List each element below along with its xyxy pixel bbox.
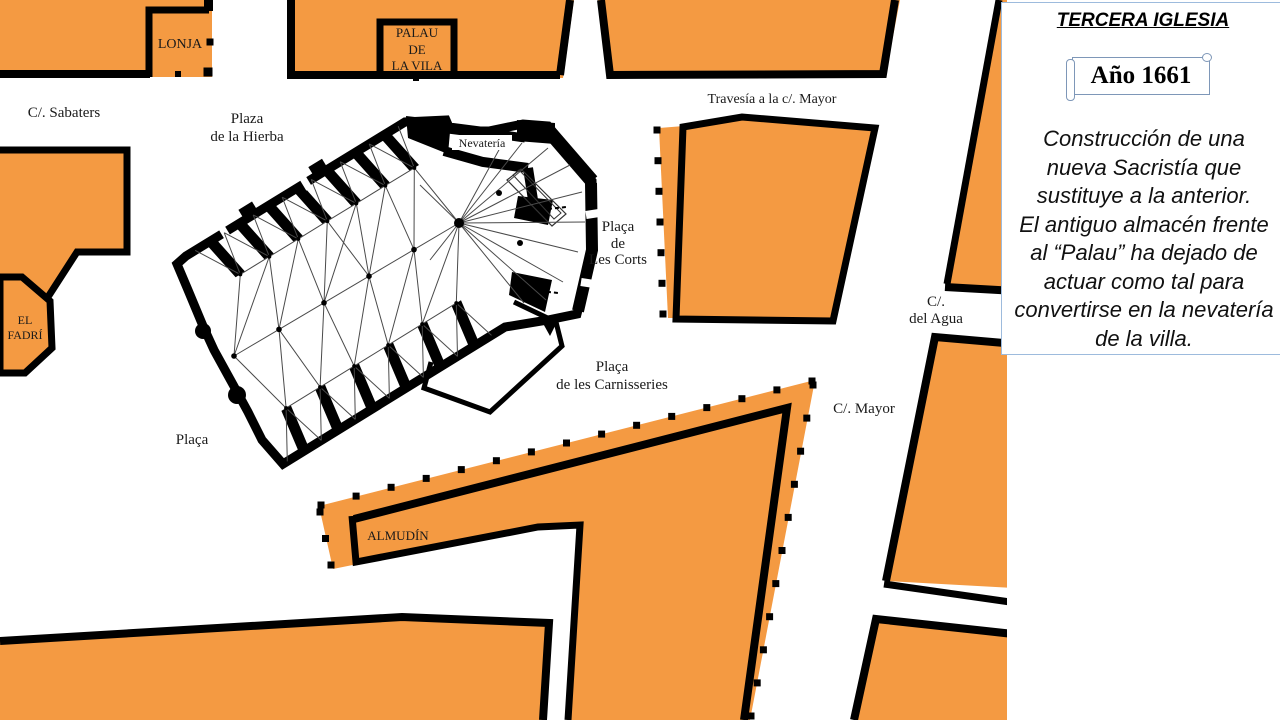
svg-text:EL: EL [18, 313, 33, 327]
svg-text:LA VILA: LA VILA [392, 58, 443, 73]
svg-text:de les Carnisseries: de les Carnisseries [556, 377, 668, 393]
svg-text:C/. Mayor: C/. Mayor [833, 401, 895, 417]
svg-text:ALMUDÍN: ALMUDÍN [367, 528, 429, 543]
svg-text:Plaça: Plaça [176, 432, 209, 448]
svg-text:Les Corts: Les Corts [589, 252, 647, 268]
svg-text:de: de [611, 236, 626, 252]
svg-text:C/. Sabaters: C/. Sabaters [28, 105, 101, 121]
svg-text:PALAU: PALAU [396, 25, 439, 40]
svg-text:Plaza: Plaza [231, 111, 264, 127]
svg-text:C/.: C/. [927, 294, 945, 310]
svg-text:Travesía a la c/. Mayor: Travesía a la c/. Mayor [708, 92, 837, 107]
svg-text:del Agua: del Agua [909, 311, 963, 327]
svg-text:Plaça: Plaça [602, 219, 635, 235]
svg-text:DE: DE [408, 42, 425, 57]
svg-text:de la Hierba: de la Hierba [210, 129, 284, 145]
svg-text:Plaça: Plaça [596, 359, 629, 375]
svg-text:FADRÍ: FADRÍ [7, 328, 42, 342]
svg-text:Nevatería: Nevatería [459, 136, 506, 150]
svg-text:LONJA: LONJA [158, 37, 203, 52]
